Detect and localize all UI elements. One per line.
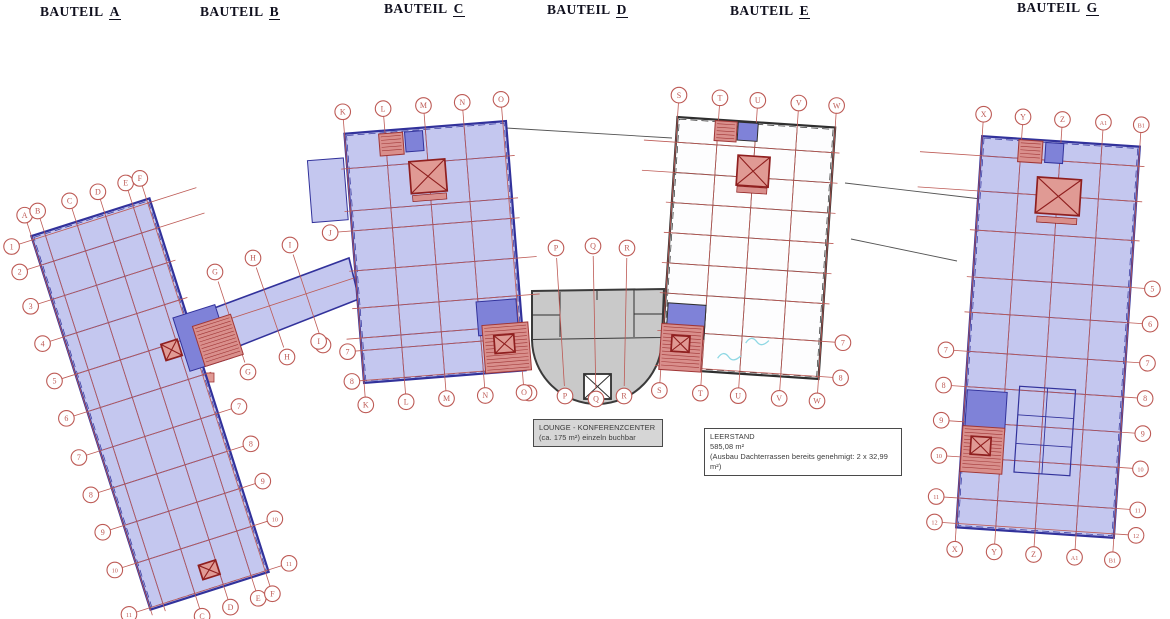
buildings-layer bbox=[14, 101, 1155, 619]
grid-axis-label: 12 bbox=[931, 520, 937, 527]
grid-axis-label: S bbox=[677, 91, 681, 100]
grid-axis-label: 8 bbox=[350, 377, 354, 386]
grid-axis-label: K bbox=[363, 401, 369, 410]
bauteil-header-prefix: BAUTEIL bbox=[547, 2, 614, 17]
grid-axis-label: 7 bbox=[237, 402, 241, 411]
bauteil-header-E: BAUTEIL E bbox=[730, 3, 810, 19]
floor-plan-canvas: GGHHIIPPQQRRO12345677889910101111ABCCDDE… bbox=[0, 0, 1170, 619]
floor-plan-page: GGHHIIPPQQRRO12345677889910101111ABCCDDE… bbox=[0, 0, 1170, 619]
grid-axis-label: C bbox=[67, 197, 72, 206]
grid-axis-label: 11 bbox=[126, 612, 132, 619]
grid-axis-label: 11 bbox=[1135, 508, 1141, 515]
grid-axis-label: F bbox=[270, 589, 275, 598]
leerstand-annotation-title: LEERSTAND bbox=[710, 432, 896, 442]
bauteil-header-C: BAUTEIL C bbox=[384, 1, 465, 17]
grid-axis-label: I bbox=[317, 337, 320, 346]
grid-axis-label: 7 bbox=[1145, 359, 1149, 368]
grid-axis-label: B1 bbox=[1138, 122, 1145, 129]
building-C-wing bbox=[307, 158, 348, 223]
grid-axis-label: U bbox=[755, 96, 761, 105]
grid-axis-label: 5 bbox=[1150, 285, 1154, 294]
grid-axis-label: 8 bbox=[89, 491, 93, 500]
grid-axis-label: N bbox=[459, 98, 465, 107]
grid-axis-label: 11 bbox=[933, 494, 939, 501]
bauteil-header-letter: E bbox=[799, 3, 810, 19]
bauteil-header-letter: D bbox=[616, 2, 628, 18]
grid-axis-label: Q bbox=[590, 242, 596, 251]
grid-axis-label: M bbox=[443, 394, 450, 403]
grid-axis-label: 8 bbox=[942, 381, 946, 390]
grid-axis-label: D bbox=[228, 603, 234, 612]
grid-axis-label: J bbox=[329, 228, 332, 237]
lobby-area bbox=[1045, 142, 1064, 163]
bauteil-header-prefix: BAUTEIL bbox=[200, 4, 267, 19]
bauteil-header-letter: B bbox=[269, 4, 280, 20]
grid-axis-label: P bbox=[563, 392, 568, 401]
building-G-group bbox=[894, 118, 1154, 553]
grid-axis-label: L bbox=[381, 104, 386, 113]
grid-axis-label: V bbox=[796, 99, 802, 108]
grid-axis-label: 5 bbox=[52, 377, 56, 386]
grid-axis-label: E bbox=[256, 594, 261, 603]
grid-axis-label: 9 bbox=[939, 416, 943, 425]
building-E-group bbox=[628, 101, 850, 394]
grid-axis-label: R bbox=[621, 392, 627, 401]
lobby-area bbox=[404, 131, 424, 152]
grid-axis-label: 9 bbox=[261, 477, 265, 486]
grid-axis-label: S bbox=[657, 386, 661, 395]
bauteil-header-letter: A bbox=[109, 4, 121, 20]
leerstand-annotation-note: (Ausbau Dachterrassen bereits genehmigt:… bbox=[710, 452, 896, 472]
grid-axis-label: M bbox=[420, 101, 427, 110]
bauteil-header-D: BAUTEIL D bbox=[547, 2, 628, 18]
grid-axis-label: 11 bbox=[286, 561, 292, 568]
bauteil-header-A: BAUTEIL A bbox=[40, 4, 121, 20]
grid-axis-label: 1 bbox=[10, 242, 14, 251]
grid-axis-label: H bbox=[250, 254, 256, 263]
lounge-annotation-subtitle: (ca. 175 m²) einzeln buchbar bbox=[539, 433, 657, 443]
grid-axis-label: H bbox=[284, 353, 290, 362]
grid-axis-label: 10 bbox=[112, 568, 118, 575]
grid-axis-label: 9 bbox=[101, 528, 105, 537]
leerstand-annotation-box: LEERSTAND 585,08 m² (Ausbau Dachterrasse… bbox=[704, 428, 902, 476]
grid-axis-label: 8 bbox=[839, 374, 843, 383]
grid-axis-label: T bbox=[698, 389, 703, 398]
building-connector-line bbox=[851, 239, 957, 261]
grid-axis-label: 6 bbox=[1148, 320, 1152, 329]
grid-axis-label: 12 bbox=[1133, 533, 1139, 540]
grid-axis-label: O bbox=[521, 388, 527, 397]
grid-axis-label: 7 bbox=[77, 453, 81, 462]
lobby-area bbox=[737, 122, 758, 141]
grid-axis-label: Y bbox=[991, 548, 997, 557]
grid-axis-label: N bbox=[482, 391, 488, 400]
bauteil-header-prefix: BAUTEIL bbox=[40, 4, 107, 19]
bauteil-header-prefix: BAUTEIL bbox=[1017, 0, 1084, 15]
grid-axis-label: K bbox=[340, 108, 346, 117]
grid-axis-label: 7 bbox=[841, 338, 845, 347]
grid-axis-label: 10 bbox=[936, 453, 942, 460]
grid-axis-label: 2 bbox=[18, 268, 22, 277]
grid-axis-label: 8 bbox=[249, 440, 253, 449]
grid-axis-label: Z bbox=[1060, 115, 1065, 124]
grid-axis-label: B bbox=[35, 207, 40, 216]
grid-axis-label: 7 bbox=[944, 346, 948, 355]
grid-axis-label: Y bbox=[1020, 113, 1026, 122]
building-connector-line bbox=[506, 128, 672, 138]
grid-axis-label: T bbox=[718, 94, 723, 103]
grid-axis-label: O bbox=[498, 95, 504, 104]
grid-axis-label: F bbox=[138, 174, 143, 183]
leerstand-annotation-area: 585,08 m² bbox=[710, 442, 896, 452]
lounge-annotation-title: LOUNGE - KONFERENZCENTER bbox=[539, 423, 657, 433]
bauteil-header-prefix: BAUTEIL bbox=[730, 3, 797, 18]
bauteil-header-G: BAUTEIL G bbox=[1017, 0, 1099, 16]
grid-axis-label: Q bbox=[593, 395, 599, 404]
grid-axis-label: G bbox=[212, 268, 218, 277]
building-A-group bbox=[14, 170, 319, 619]
lounge-annotation-box: LOUNGE - KONFERENZCENTER (ca. 175 m²) ei… bbox=[533, 419, 663, 447]
grid-axis-label: W bbox=[833, 101, 841, 110]
grid-axis-label: 4 bbox=[41, 339, 45, 348]
bauteil-header-letter: C bbox=[453, 1, 465, 17]
grid-axis-label: V bbox=[776, 394, 782, 403]
grid-axis-label: W bbox=[813, 397, 821, 406]
grid-axis-label: 3 bbox=[29, 302, 33, 311]
grid-axis-label: G bbox=[245, 368, 251, 377]
grid-axis-label: R bbox=[624, 244, 630, 253]
grid-axis-label: 6 bbox=[64, 414, 68, 423]
grid-axis-label: B1 bbox=[1109, 557, 1116, 564]
bauteil-header-prefix: BAUTEIL bbox=[384, 1, 451, 16]
grid-axis-label: 7 bbox=[346, 347, 350, 356]
grid-axis-label: A bbox=[22, 211, 28, 220]
grid-axis-label: P bbox=[554, 244, 559, 253]
grid-axis-label: E bbox=[123, 179, 128, 188]
grid-axis-label: 8 bbox=[1143, 394, 1147, 403]
grid-axis-label: 10 bbox=[272, 517, 278, 524]
grid-axis-label: A1 bbox=[1071, 555, 1079, 562]
grid-axis-label: A1 bbox=[1100, 120, 1108, 127]
grid-axis-label: L bbox=[404, 397, 409, 406]
building-connector-line bbox=[845, 183, 981, 199]
grid-axis-label: D bbox=[95, 187, 101, 196]
bauteil-header-letter: G bbox=[1086, 0, 1099, 16]
grid-axis-label: Z bbox=[1031, 550, 1036, 559]
bauteil-header-B: BAUTEIL B bbox=[200, 4, 280, 20]
grid-axis-label: X bbox=[952, 545, 958, 554]
grid-axis-label: I bbox=[289, 241, 292, 250]
grid-axis-label: U bbox=[735, 391, 741, 400]
grid-axis-label: C bbox=[199, 612, 204, 619]
grid-axis-label: 9 bbox=[1141, 429, 1145, 438]
grid-axis-label: 10 bbox=[1137, 467, 1143, 474]
grid-axis-label: X bbox=[981, 110, 987, 119]
